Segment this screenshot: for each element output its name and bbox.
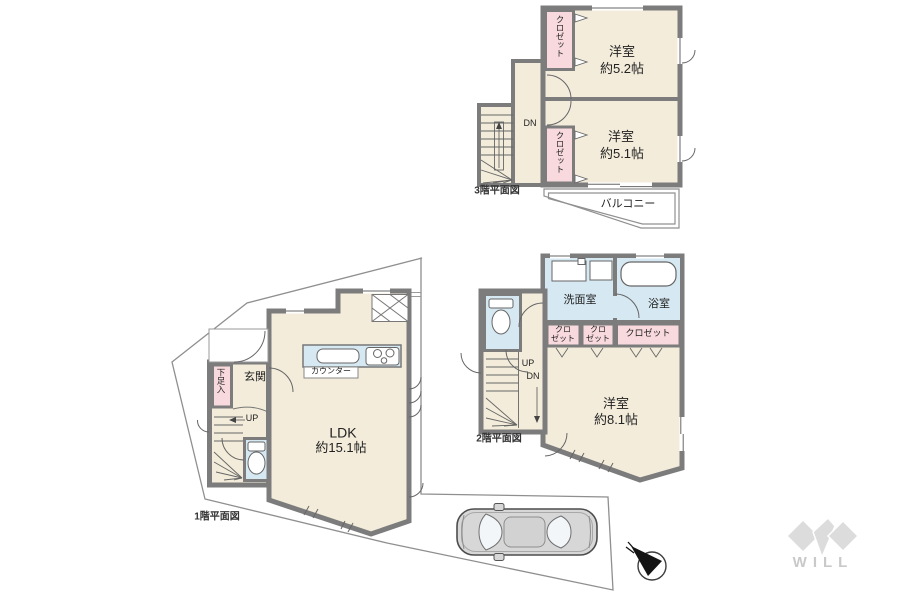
hatched-area — [372, 295, 408, 322]
floor2-closet-a-label: クロ ゼット — [551, 326, 575, 344]
floor3-stairwell — [479, 105, 515, 185]
side-mirror — [494, 554, 504, 561]
shoe-storage-label: 下足入 — [215, 368, 227, 394]
floor1-caption: 1階平面図 — [194, 512, 240, 523]
counter-label: カウンター — [311, 368, 351, 377]
washroom-label: 洗面室 — [564, 294, 597, 306]
floor3-room2-size: 約5.1帖 — [600, 147, 644, 161]
floor3-room1-name: 洋室 — [609, 45, 635, 59]
floor2-bedroom-size: 約8.1帖 — [594, 413, 638, 427]
floor2-bedroom-name: 洋室 — [603, 397, 629, 411]
compass-icon — [626, 542, 666, 580]
floor3-closet1-label: クロゼット — [554, 15, 566, 58]
porch — [209, 329, 268, 362]
floor1-stair-up-label: UP — [246, 414, 259, 424]
floor3-room1-size: 約5.2帖 — [600, 62, 644, 76]
floor3-room2-name: 洋室 — [608, 130, 634, 144]
floor3-caption: 3階平面図 — [474, 186, 520, 197]
floor2-closet-c-label: クロゼット — [625, 329, 670, 339]
floor3-stair-dn-label: DN — [524, 119, 537, 129]
floor-plan-drawing — [0, 0, 900, 601]
floor-plan-page: 洋室 約5.2帖 洋室 約5.1帖 クロゼット クロゼット DN バルコニー 3… — [0, 0, 900, 601]
will-logo — [788, 518, 858, 557]
floor2-stair-dn-label: DN — [527, 372, 540, 382]
will-logo-text: WILL — [793, 555, 854, 572]
toilet-icon-1f — [248, 442, 265, 474]
side-mirror — [494, 504, 504, 511]
bathtub-icon — [621, 262, 676, 286]
washer-icon — [590, 261, 612, 280]
entrance-label: 玄関 — [244, 371, 266, 383]
car-roof — [504, 517, 545, 547]
ldk-size: 約15.1帖 — [315, 441, 366, 455]
ldk-name: LDK — [329, 425, 356, 440]
floor1-plan — [197, 289, 423, 535]
washbasin-icon — [552, 259, 586, 282]
floor2-closet-b-label: クロ ゼット — [586, 326, 610, 344]
car-illustration — [457, 504, 597, 561]
bathroom-label: 浴室 — [648, 298, 670, 310]
window-arc-left — [461, 353, 481, 373]
balcony-label: バルコニー — [601, 198, 656, 210]
floor2-plan — [461, 254, 685, 481]
sink-icon — [317, 349, 359, 363]
floor2-stair-up-label: UP — [522, 359, 535, 369]
floor3-closet2-label: クロゼット — [554, 131, 566, 174]
floor2-caption: 2階平面図 — [476, 434, 522, 445]
ldk-room — [269, 291, 409, 534]
